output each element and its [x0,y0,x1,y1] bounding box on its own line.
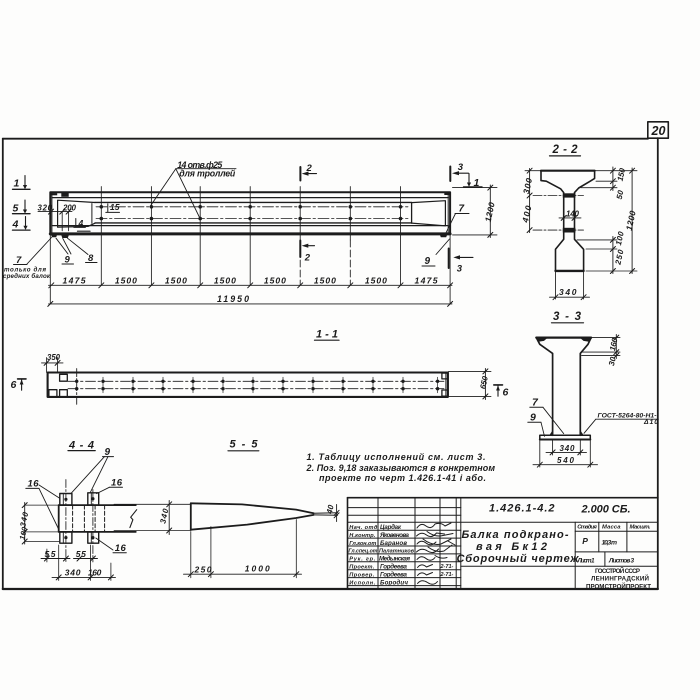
svg-text:5-5: 5-5 [230,439,259,451]
svg-text:1-1: 1-1 [316,329,338,341]
svg-text:Гл.спец.от: Гл.спец.от [348,549,377,555]
svg-text:340: 340 [65,568,81,578]
svg-text:Провер.: Провер. [349,572,374,578]
svg-text:2-71-: 2-71- [440,572,454,578]
svg-text:55: 55 [76,549,86,559]
svg-text:4: 4 [12,219,19,231]
svg-text:150: 150 [616,167,628,182]
svg-text:1500: 1500 [264,276,286,286]
svg-text:для троллей: для троллей [179,169,236,179]
svg-text:Бородич: Бородич [380,579,408,586]
svg-text:Баранов: Баранов [380,540,407,547]
svg-text:1200: 1200 [624,210,638,232]
svg-text:7: 7 [459,204,465,215]
svg-text:11950: 11950 [217,294,249,304]
svg-text:ГОССТРОЙ СССР: ГОССТРОЙ СССР [595,567,640,575]
svg-text:Гордеева: Гордеева [380,571,408,578]
svg-text:50: 50 [615,189,626,200]
svg-text:Гордеева: Гордеева [380,564,408,571]
svg-text:Н.контр.: Н.контр. [349,533,375,539]
svg-text:1475: 1475 [415,276,438,286]
svg-text:1000: 1000 [245,564,270,574]
svg-text:100: 100 [614,230,626,246]
svg-text:15: 15 [110,202,120,212]
svg-text:Листов 3: Листов 3 [608,558,634,565]
svg-text:2. Поз. 9,18 заказываются в ко: 2. Поз. 9,18 заказываются в конкретном [306,463,496,473]
svg-text:340: 340 [158,507,170,524]
svg-text:55: 55 [45,549,56,559]
svg-text:2: 2 [306,163,313,174]
svg-text:Цардак: Цардак [380,524,402,531]
svg-text:Медынская: Медынская [379,556,410,563]
svg-text:Масса: Масса [602,525,621,531]
svg-text:Балка подкрано-: Балка подкрано- [462,529,569,541]
svg-text:1.426.1-4.2: 1.426.1-4.2 [489,503,555,515]
svg-text:5: 5 [13,203,19,215]
svg-text:250: 250 [194,565,212,575]
svg-text:2: 2 [304,253,311,264]
svg-text:Стадия: Стадия [577,525,597,531]
svg-text:400: 400 [520,204,534,224]
svg-text:Исполн.: Исполн. [349,580,375,586]
svg-text:4-4: 4-4 [68,439,94,451]
svg-text:340: 340 [18,511,30,528]
svg-text:140: 140 [566,209,580,218]
svg-text:Рук. гр.: Рук. гр. [349,557,375,563]
svg-text:1500: 1500 [365,276,387,286]
svg-text:1500: 1500 [115,276,137,286]
svg-text:160: 160 [608,337,620,352]
svg-text:2-2: 2-2 [552,144,579,156]
svg-text:Гл.кон.от: Гл.кон.от [349,541,376,547]
svg-text:1200: 1200 [483,201,497,223]
svg-text:Нач. отд: Нач. отд [349,525,378,531]
svg-text:Лист 1: Лист 1 [577,558,595,565]
svg-text:ПРОМСТРОЙПРОЕКТ: ПРОМСТРОЙПРОЕКТ [586,582,651,590]
svg-text:350: 350 [47,353,61,362]
svg-text:540: 540 [557,456,575,465]
svg-text:Масшт.: Масшт. [630,525,651,531]
svg-text:250: 250 [613,248,625,266]
svg-text:Яковенова: Яковенова [379,532,410,539]
svg-text:9: 9 [530,412,536,424]
svg-text:проекте по черт 1.426.1-41 i а: проекте по черт 1.426.1-41 i або. [319,473,486,483]
svg-text:1500: 1500 [314,276,336,286]
svg-text:340: 340 [560,444,576,453]
svg-text:7: 7 [532,397,539,409]
svg-text:Сборочный чертеж: Сборочный чертеж [457,553,580,565]
svg-text:10,3 т: 10,3 т [602,539,618,546]
svg-text:340: 340 [559,287,577,297]
svg-text:20: 20 [651,124,666,138]
svg-text:ЛЕНИНГРАДСКИЙ: ЛЕНИНГРАДСКИЙ [591,575,650,583]
svg-text:40: 40 [325,504,336,516]
svg-text:320: 320 [38,203,53,212]
svg-text:4: 4 [78,218,84,228]
svg-text:100: 100 [18,525,30,540]
svg-text:Р: Р [582,536,588,546]
svg-text:1: 1 [14,178,20,190]
svg-text:9: 9 [425,256,431,267]
svg-text:1. Таблицу исполнений см. лист: 1. Таблицу исполнений см. лист 3. [307,452,486,462]
svg-text:Палатников: Палатников [379,549,415,555]
svg-text:6: 6 [503,386,509,398]
svg-text:вая Бк12: вая Бк12 [476,541,547,553]
svg-text:Проект.: Проект. [349,565,374,571]
svg-text:300: 300 [521,177,534,195]
svg-text:16: 16 [28,479,40,490]
svg-text:1500: 1500 [214,276,236,286]
svg-text:средних балок: средних балок [3,273,51,280]
svg-text:3-3: 3-3 [553,311,582,323]
svg-text:650: 650 [478,375,490,390]
svg-text:200: 200 [62,204,77,213]
svg-text:Δ10: Δ10 [643,419,658,426]
svg-text:1475: 1475 [63,276,86,286]
svg-text:6: 6 [11,379,17,391]
svg-text:3: 3 [458,162,464,173]
svg-text:2-71-: 2-71- [440,564,454,570]
svg-text:2.000 СБ.: 2.000 СБ. [581,504,631,516]
svg-text:160: 160 [88,568,102,578]
svg-text:1500: 1500 [165,276,187,286]
svg-text:3: 3 [457,264,463,275]
